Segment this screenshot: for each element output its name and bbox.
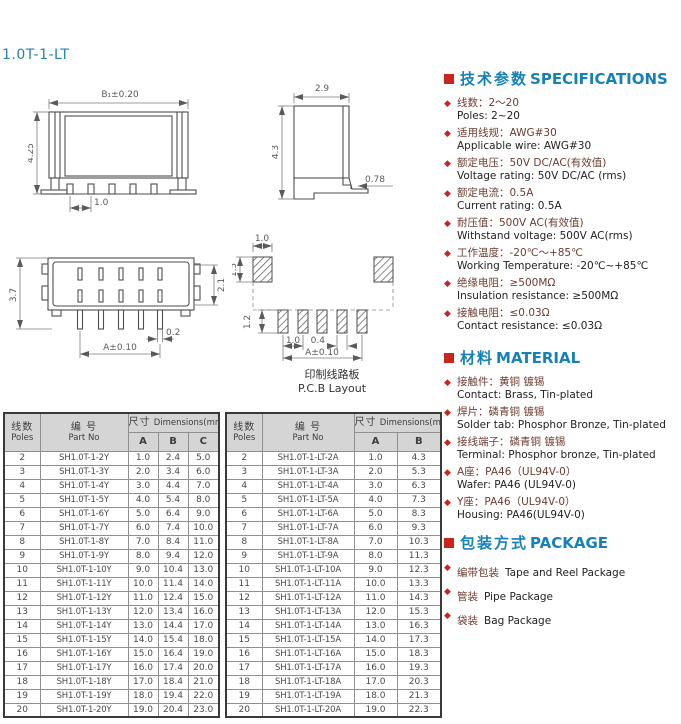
dim-cell: 18.0 <box>354 689 397 703</box>
side-view-foot-label: 0.78 <box>365 175 385 185</box>
spec-item-cn: 线数：2～20 <box>457 97 681 110</box>
dim-cell: 11.4 <box>158 577 188 591</box>
diamond-bullet-icon: ◆ <box>444 307 457 333</box>
poles-cell: 8 <box>226 535 262 549</box>
dim-cell: 10.0 <box>128 577 158 591</box>
table-row: 19SH1.0T-1-19Y18.019.422.0 <box>4 689 219 703</box>
poles-cell: 9 <box>4 549 40 563</box>
spec-item-en: Withstand voltage: 500V AC(rms) <box>457 230 681 243</box>
dim-cell: 13.0 <box>354 619 397 633</box>
part-no-cell: SH1.0T-1-LT-12A <box>262 591 354 605</box>
poles-cell: 2 <box>4 451 40 465</box>
poles-cell: 12 <box>4 591 40 605</box>
poles-cell: 13 <box>226 605 262 619</box>
dim-cell: 22.0 <box>188 689 219 703</box>
part-no-cell: SH1.0T-1-LT-13A <box>262 605 354 619</box>
part-no-cell: SH1.0T-1-10Y <box>40 563 128 577</box>
dim-cell: 17.0 <box>128 675 158 689</box>
table-row: 13SH1.0T-1-13Y12.013.416.0 <box>4 605 219 619</box>
pkg-item-text: 管装Pipe Package <box>457 585 681 604</box>
dim-table-body-1: 2SH1.0T-1-2Y1.02.45.03SH1.0T-1-3Y2.03.46… <box>4 451 219 717</box>
pkg-item-text: 编带包装Tape and Reel Package <box>457 561 681 580</box>
dim-cell: 18.0 <box>188 633 219 647</box>
dim-cell: 5.0 <box>354 507 397 521</box>
poles-cell: 16 <box>4 647 40 661</box>
dim-cell: 2.4 <box>158 451 188 465</box>
table-row: 10SH1.0T-1-10Y9.010.413.0 <box>4 563 219 577</box>
diamond-bullet-icon: ◆ <box>444 496 457 522</box>
spec-item-text: 适用线规：AWG#30Applicable wire: AWG#30 <box>457 127 681 153</box>
side-view-height-label: 4.3 <box>272 145 281 159</box>
part-no-cell: SH1.0T-1-6Y <box>40 507 128 521</box>
part-no-cell: SH1.0T-1-2Y <box>40 451 128 465</box>
dim-cell: 9.0 <box>188 507 219 521</box>
spec-item-en: Working Temperature: -20℃~+85℃ <box>457 260 681 273</box>
spec-item-en: Applicable wire: AWG#30 <box>457 140 681 153</box>
pcb-caption: 印制线路板 P.C.B Layout <box>232 368 432 396</box>
table-row: 9SH1.0T-1-9Y8.09.412.0 <box>4 549 219 563</box>
part-no-cell: SH1.0T-1-17Y <box>40 661 128 675</box>
poles-cell: 17 <box>4 661 40 675</box>
dim-cell: 2.0 <box>354 465 397 479</box>
part-no-cell: SH1.0T-1-LT-3A <box>262 465 354 479</box>
poles-cell: 14 <box>4 619 40 633</box>
dim-col-header: C <box>188 432 219 451</box>
dim-cell: 14.0 <box>128 633 158 647</box>
table-row: 2SH1.0T-1-2Y1.02.45.0 <box>4 451 219 465</box>
part-no-cell: SH1.0T-1-19Y <box>40 689 128 703</box>
specifications-section: 技术参数 SPECIFICATIONS ◆线数：2～20Poles: 2~20◆… <box>444 68 681 333</box>
poles-cell: 11 <box>4 577 40 591</box>
material-item-cn: 焊片：磷青铜 镀锡 <box>457 406 681 419</box>
part-no-cell: SH1.0T-1-8Y <box>40 535 128 549</box>
spec-item-en: Voltage rating: 50V DC/AC (rms) <box>457 170 681 183</box>
poles-cell: 12 <box>226 591 262 605</box>
material-item-en: Terminal: Phosphor bronze, Tin-plated <box>457 449 681 462</box>
dim-cell: 18.0 <box>128 689 158 703</box>
poles-cell: 7 <box>4 521 40 535</box>
poles-cell: 2 <box>226 451 262 465</box>
table-row: 4SH1.0T-1-4Y3.04.47.0 <box>4 479 219 493</box>
dim-cell: 16.3 <box>397 619 441 633</box>
dim-cell: 8.0 <box>128 549 158 563</box>
dim-cell: 11.0 <box>188 535 219 549</box>
material-item: ◆A座：PA46（UL94V-0）Wafer: PA46 (UL94V-0) <box>444 466 681 492</box>
dimensions-header: 尺寸 Dimensions(mm) <box>354 413 441 432</box>
diamond-bullet-icon: ◆ <box>444 247 457 273</box>
poles-cell: 9 <box>226 549 262 563</box>
material-item: ◆Y座：PA46（UL94V-0）Housing: PA46(UL94V-0) <box>444 496 681 522</box>
spec-item-cn: 额定电压：50V DC/AC(有效值) <box>457 157 681 170</box>
part-no-cell: SH1.0T-1-LT-5A <box>262 493 354 507</box>
spec-item-en: Poles: 2~20 <box>457 110 681 123</box>
specifications-header: 技术参数 SPECIFICATIONS <box>444 68 681 89</box>
table-row: 18SH1.0T-1-18Y17.018.421.0 <box>4 675 219 689</box>
part-no-cell: SH1.0T-1-11Y <box>40 577 128 591</box>
material-item-text: Y座：PA46（UL94V-0）Housing: PA46(UL94V-0) <box>457 496 681 522</box>
specifications-title-cn: 技术参数 <box>460 68 528 89</box>
table-row: 2SH1.0T-1-LT-2A1.04.3 <box>226 451 441 465</box>
poles-cell: 3 <box>226 465 262 479</box>
dim-cell: 10.0 <box>354 577 397 591</box>
part-no-cell: SH1.0T-1-7Y <box>40 521 128 535</box>
diamond-bullet-icon: ◆ <box>444 187 457 213</box>
part-no-cell: SH1.0T-1-13Y <box>40 605 128 619</box>
spec-item: ◆耐压值：500V AC(有效值)Withstand voltage: 500V… <box>444 217 681 243</box>
poles-cell: 11 <box>226 577 262 591</box>
poles-cell: 17 <box>226 661 262 675</box>
part-no-cell: SH1.0T-1-LT-11A <box>262 577 354 591</box>
diamond-bullet-icon: ◆ <box>444 561 457 580</box>
material-item-cn: 接触件：黄铜 镀锡 <box>457 376 681 389</box>
table-row: 5SH1.0T-1-5Y4.05.48.0 <box>4 493 219 507</box>
table-row: 7SH1.0T-1-7Y6.07.410.0 <box>4 521 219 535</box>
dim-cell: 8.3 <box>397 507 441 521</box>
dim-cell: 16.0 <box>354 661 397 675</box>
top-view-drawing: 3.7 2.1 0.2 A±0.10 <box>5 236 235 372</box>
dim-cell: 11.0 <box>354 591 397 605</box>
dim-cell: 12.0 <box>188 549 219 563</box>
poles-cell: 18 <box>226 675 262 689</box>
dim-cell: 12.0 <box>354 605 397 619</box>
dim-cell: 5.0 <box>128 507 158 521</box>
spec-item-text: 额定电压：50V DC/AC(有效值)Voltage rating: 50V D… <box>457 157 681 183</box>
part-no-cell: SH1.0T-1-20Y <box>40 703 128 717</box>
poles-cell: 4 <box>226 479 262 493</box>
spec-item-text: 工作温度：-20℃～+85℃Working Temperature: -20℃~… <box>457 247 681 273</box>
table-row: 6SH1.0T-1-LT-6A5.08.3 <box>226 507 441 521</box>
dim-cell: 5.4 <box>158 493 188 507</box>
material-item-en: Contact: Brass, Tin-plated <box>457 389 681 402</box>
package-section: 包装方式 PACKAGE ◆编带包装Tape and Reel Package◆… <box>444 532 681 628</box>
poles-cell: 20 <box>226 703 262 717</box>
dim-cell: 21.0 <box>188 675 219 689</box>
spec-item-cn: 工作温度：-20℃～+85℃ <box>457 247 681 260</box>
part-no-cell: SH1.0T-1-LT-4A <box>262 479 354 493</box>
package-list: ◆编带包装Tape and Reel Package◆管装Pipe Packag… <box>444 561 681 628</box>
dim-cell: 15.3 <box>397 605 441 619</box>
table-row: 8SH1.0T-1-LT-8A7.010.3 <box>226 535 441 549</box>
part-no-cell: SH1.0T-1-LT-20A <box>262 703 354 717</box>
spec-item-cn: 额定电流：0.5A <box>457 187 681 200</box>
pcb-layout-drawing: 1.0 1.5 1.2 1.0 0.4 A±0.10 <box>232 232 432 362</box>
pkg-item-cn: 编带包装 <box>457 567 499 579</box>
part-no-cell: SH1.0T-1-LT-8A <box>262 535 354 549</box>
poles-cell: 19 <box>4 689 40 703</box>
top-view-height-label: 3.7 <box>9 288 19 302</box>
pcb-pin-width-label: 0.4 <box>311 336 326 346</box>
material-item-cn: A座：PA46（UL94V-0） <box>457 466 681 479</box>
dim-cell: 12.0 <box>128 605 158 619</box>
pcb-pad-height-label: 1.5 <box>232 263 239 277</box>
part-no-cell: SH1.0T-1-LT-19A <box>262 689 354 703</box>
dim-cell: 13.0 <box>188 563 219 577</box>
dim-cell: 12.3 <box>397 563 441 577</box>
pcb-span-label: A±0.10 <box>305 348 339 358</box>
pkg-item-en: Pipe Package <box>484 591 553 603</box>
section-bullet-icon <box>444 74 454 84</box>
dim-cell: 6.0 <box>188 465 219 479</box>
dim-cell: 10.0 <box>188 521 219 535</box>
dim-cell: 17.0 <box>354 675 397 689</box>
dim-cell: 4.0 <box>128 493 158 507</box>
pcb-caption-cn: 印制线路板 <box>232 368 432 382</box>
table-row: 6SH1.0T-1-6Y5.06.49.0 <box>4 507 219 521</box>
table-row: 12SH1.0T-1-LT-12A11.014.3 <box>226 591 441 605</box>
material-item-text: 接触件：黄铜 镀锡Contact: Brass, Tin-plated <box>457 376 681 402</box>
specifications-list: ◆线数：2～20Poles: 2~20◆适用线规：AWG#30Applicabl… <box>444 97 681 333</box>
spec-item-text: 线数：2～20Poles: 2~20 <box>457 97 681 123</box>
diamond-bullet-icon: ◆ <box>444 127 457 153</box>
dim-cell: 22.3 <box>397 703 441 717</box>
dim-cell: 11.0 <box>128 591 158 605</box>
pkg-item: ◆编带包装Tape and Reel Package <box>444 561 681 580</box>
dim-cell: 3.0 <box>354 479 397 493</box>
part-no-cell: SH1.0T-1-3Y <box>40 465 128 479</box>
table-row: 18SH1.0T-1-LT-18A17.020.3 <box>226 675 441 689</box>
table-row: 4SH1.0T-1-LT-4A3.06.3 <box>226 479 441 493</box>
dim-cell: 4.0 <box>354 493 397 507</box>
part-no-cell: SH1.0T-1-15Y <box>40 633 128 647</box>
part-no-cell: SH1.0T-1-4Y <box>40 479 128 493</box>
dim-cell: 3.0 <box>128 479 158 493</box>
table-row: 14SH1.0T-1-14Y13.014.417.0 <box>4 619 219 633</box>
top-view-pin-width-label: 0.2 <box>166 328 180 338</box>
poles-cell: 15 <box>4 633 40 647</box>
material-list: ◆接触件：黄铜 镀锡Contact: Brass, Tin-plated◆焊片：… <box>444 376 681 522</box>
spec-item-cn: 适用线规：AWG#30 <box>457 127 681 140</box>
material-header: 材料 MATERIAL <box>444 347 681 368</box>
package-title-cn: 包装方式 <box>460 532 528 553</box>
material-item-cn: 接线端子：磷青铜 镀锡 <box>457 436 681 449</box>
front-view-pitch-label: 1.0 <box>94 198 109 208</box>
poles-cell: 6 <box>226 507 262 521</box>
dim-cell: 6.3 <box>397 479 441 493</box>
dim-col-header: B <box>397 432 441 451</box>
dim-cell: 19.0 <box>354 703 397 717</box>
part-no-cell: SH1.0T-1-16Y <box>40 647 128 661</box>
package-title-en: PACKAGE <box>530 534 608 552</box>
dim-cell: 20.0 <box>188 661 219 675</box>
dim-cell: 14.3 <box>397 591 441 605</box>
dimensions-table-1: 线数Poles 编 号Part No 尺寸 Dimensions(mm) ABC… <box>3 412 220 718</box>
pkg-item-text: 袋装Bag Package <box>457 609 681 628</box>
spec-item: ◆线数：2～20Poles: 2~20 <box>444 97 681 123</box>
front-view-drawing: B₁±0.20 4.25 1.0 <box>28 88 223 220</box>
material-item-cn: Y座：PA46（UL94V-0） <box>457 496 681 509</box>
dim-cell: 2.0 <box>128 465 158 479</box>
spec-item-cn: 耐压值：500V AC(有效值) <box>457 217 681 230</box>
spec-item-en: Contact resistance: ≤0.03Ω <box>457 320 681 333</box>
table-row: 19SH1.0T-1-LT-19A18.021.3 <box>226 689 441 703</box>
dim-cell: 13.3 <box>397 577 441 591</box>
diamond-bullet-icon: ◆ <box>444 609 457 628</box>
part-no-cell: SH1.0T-1-LT-6A <box>262 507 354 521</box>
pcb-pin-height-label: 1.2 <box>243 315 253 329</box>
part-no-header: 编 号Part No <box>262 413 354 451</box>
material-item: ◆焊片：磷青铜 镀锡Solder tab: Phosphor Bronze, T… <box>444 406 681 432</box>
part-no-cell: SH1.0T-1-LT-14A <box>262 619 354 633</box>
poles-cell: 3 <box>4 465 40 479</box>
pcb-caption-en: P.C.B Layout <box>232 382 432 396</box>
spec-item-text: 耐压值：500V AC(有效值)Withstand voltage: 500V … <box>457 217 681 243</box>
front-view-width-label: B₁±0.20 <box>101 90 139 100</box>
diamond-bullet-icon: ◆ <box>444 436 457 462</box>
table-row: 3SH1.0T-1-LT-3A2.05.3 <box>226 465 441 479</box>
table-row: 8SH1.0T-1-8Y7.08.411.0 <box>4 535 219 549</box>
table-row: 15SH1.0T-1-15Y14.015.418.0 <box>4 633 219 647</box>
dim-cell: 5.0 <box>188 451 219 465</box>
poles-cell: 18 <box>4 675 40 689</box>
part-no-cell: SH1.0T-1-5Y <box>40 493 128 507</box>
material-section: 材料 MATERIAL ◆接触件：黄铜 镀锡Contact: Brass, Ti… <box>444 347 681 522</box>
poles-cell: 7 <box>226 521 262 535</box>
poles-cell: 4 <box>4 479 40 493</box>
poles-cell: 10 <box>4 563 40 577</box>
dim-cell: 19.0 <box>188 647 219 661</box>
dim-cell: 16.4 <box>158 647 188 661</box>
table-row: 16SH1.0T-1-16Y15.016.419.0 <box>4 647 219 661</box>
dim-col-header: A <box>354 432 397 451</box>
table-row: 11SH1.0T-1-11Y10.011.414.0 <box>4 577 219 591</box>
dim-cell: 7.3 <box>397 493 441 507</box>
side-view-width-label: 2.9 <box>315 84 330 94</box>
dim-cell: 9.3 <box>397 521 441 535</box>
dim-cell: 10.3 <box>397 535 441 549</box>
dim-cell: 17.4 <box>158 661 188 675</box>
table-row: 17SH1.0T-1-17Y16.017.420.0 <box>4 661 219 675</box>
material-item: ◆接触件：黄铜 镀锡Contact: Brass, Tin-plated <box>444 376 681 402</box>
table-row: 11SH1.0T-1-LT-11A10.013.3 <box>226 577 441 591</box>
page-title: 1.0T-1-LT <box>2 47 69 63</box>
part-no-cell: SH1.0T-1-18Y <box>40 675 128 689</box>
dim-col-header: B <box>158 432 188 451</box>
table-row: 3SH1.0T-1-3Y2.03.46.0 <box>4 465 219 479</box>
material-item-text: 焊片：磷青铜 镀锡Solder tab: Phosphor Bronze, Ti… <box>457 406 681 432</box>
table-row: 15SH1.0T-1-LT-15A14.017.3 <box>226 633 441 647</box>
material-item-en: Housing: PA46(UL94V-0) <box>457 509 681 522</box>
spec-item-cn: 绝缘电阻：≥500MΩ <box>457 277 681 290</box>
dim-cell: 14.0 <box>354 633 397 647</box>
part-no-cell: SH1.0T-1-12Y <box>40 591 128 605</box>
spec-item-text: 绝缘电阻：≥500MΩInsulation resistance: ≥500MΩ <box>457 277 681 303</box>
dim-cell: 17.3 <box>397 633 441 647</box>
dim-cell: 19.0 <box>128 703 158 717</box>
dim-cell: 1.0 <box>128 451 158 465</box>
spec-item-cn: 接触电阻：≤0.03Ω <box>457 307 681 320</box>
dim-cell: 7.4 <box>158 521 188 535</box>
diamond-bullet-icon: ◆ <box>444 466 457 492</box>
dim-cell: 6.0 <box>128 521 158 535</box>
poles-cell: 15 <box>226 633 262 647</box>
dimensions-table-2: 线数Poles 编 号Part No 尺寸 Dimensions(mm) AB … <box>225 412 442 718</box>
pkg-item-en: Bag Package <box>484 615 551 627</box>
dim-cell: 20.4 <box>158 703 188 717</box>
dim-cell: 6.4 <box>158 507 188 521</box>
top-view-span-label: A±0.10 <box>103 343 137 353</box>
table-row: 9SH1.0T-1-LT-9A8.011.3 <box>226 549 441 563</box>
table-row: 17SH1.0T-1-LT-17A16.019.3 <box>226 661 441 675</box>
part-no-cell: SH1.0T-1-LT-17A <box>262 661 354 675</box>
dim-cell: 10.4 <box>158 563 188 577</box>
pkg-item: ◆袋装Bag Package <box>444 609 681 628</box>
part-no-cell: SH1.0T-1-LT-15A <box>262 633 354 647</box>
dim-cell: 7.0 <box>128 535 158 549</box>
spec-item: ◆额定电压：50V DC/AC(有效值)Voltage rating: 50V … <box>444 157 681 183</box>
part-no-cell: SH1.0T-1-LT-16A <box>262 647 354 661</box>
material-title-cn: 材料 <box>460 347 494 368</box>
poles-header: 线数Poles <box>4 413 40 451</box>
pkg-item-cn: 袋装 <box>457 615 478 627</box>
material-item-text: A座：PA46（UL94V-0）Wafer: PA46 (UL94V-0) <box>457 466 681 492</box>
part-no-cell: SH1.0T-1-LT-9A <box>262 549 354 563</box>
dim-cell: 9.0 <box>128 563 158 577</box>
dim-cell: 15.4 <box>158 633 188 647</box>
dim-cell: 7.0 <box>354 535 397 549</box>
spec-item-en: Insulation resistance: ≥500MΩ <box>457 290 681 303</box>
diamond-bullet-icon: ◆ <box>444 585 457 604</box>
dim-cell: 16.0 <box>188 605 219 619</box>
pcb-pad-width-label: 1.0 <box>255 234 270 244</box>
front-view-height-label: 4.25 <box>28 143 36 163</box>
dim-cell: 6.0 <box>354 521 397 535</box>
pkg-item-cn: 管装 <box>457 591 478 603</box>
poles-cell: 8 <box>4 535 40 549</box>
spec-item: ◆绝缘电阻：≥500MΩInsulation resistance: ≥500M… <box>444 277 681 303</box>
part-no-cell: SH1.0T-1-LT-18A <box>262 675 354 689</box>
dim-cell: 13.4 <box>158 605 188 619</box>
part-no-cell: SH1.0T-1-LT-7A <box>262 521 354 535</box>
material-item: ◆接线端子：磷青铜 镀锡Terminal: Phosphor bronze, T… <box>444 436 681 462</box>
diamond-bullet-icon: ◆ <box>444 406 457 432</box>
right-column: 技术参数 SPECIFICATIONS ◆线数：2～20Poles: 2~20◆… <box>444 68 681 638</box>
diamond-bullet-icon: ◆ <box>444 376 457 402</box>
section-bullet-icon <box>444 353 454 363</box>
material-item-en: Solder tab: Phosphor Bronze, Tin-plated <box>457 419 681 432</box>
dim-cell: 3.4 <box>158 465 188 479</box>
top-view-cavity-label: 2.1 <box>217 278 227 292</box>
specifications-title-en: SPECIFICATIONS <box>530 70 668 88</box>
diamond-bullet-icon: ◆ <box>444 157 457 183</box>
part-no-header: 编 号Part No <box>40 413 128 451</box>
dim-cell: 9.0 <box>354 563 397 577</box>
part-no-cell: SH1.0T-1-LT-2A <box>262 451 354 465</box>
diamond-bullet-icon: ◆ <box>444 277 457 303</box>
dimensions-header: 尺寸 Dimensions(mm) <box>128 413 219 432</box>
table-row: 5SH1.0T-1-LT-5A4.07.3 <box>226 493 441 507</box>
poles-cell: 5 <box>4 493 40 507</box>
poles-cell: 6 <box>4 507 40 521</box>
poles-cell: 19 <box>226 689 262 703</box>
dim-cell: 18.4 <box>158 675 188 689</box>
dim-cell: 16.0 <box>128 661 158 675</box>
poles-cell: 20 <box>4 703 40 717</box>
table-row: 13SH1.0T-1-LT-13A12.015.3 <box>226 605 441 619</box>
side-view-drawing: 2.9 4.3 0.78 <box>272 82 397 232</box>
material-title-en: MATERIAL <box>496 349 580 367</box>
diamond-bullet-icon: ◆ <box>444 97 457 123</box>
table-row: 16SH1.0T-1-LT-16A15.018.3 <box>226 647 441 661</box>
material-item-en: Wafer: PA46 (UL94V-0) <box>457 479 681 492</box>
spec-item: ◆工作温度：-20℃～+85℃Working Temperature: -20℃… <box>444 247 681 273</box>
poles-cell: 14 <box>226 619 262 633</box>
part-no-cell: SH1.0T-1-9Y <box>40 549 128 563</box>
table-row: 12SH1.0T-1-12Y11.012.415.0 <box>4 591 219 605</box>
dim-cell: 18.3 <box>397 647 441 661</box>
spec-item-text: 接触电阻：≤0.03ΩContact resistance: ≤0.03Ω <box>457 307 681 333</box>
diamond-bullet-icon: ◆ <box>444 217 457 243</box>
dim-cell: 4.3 <box>397 451 441 465</box>
